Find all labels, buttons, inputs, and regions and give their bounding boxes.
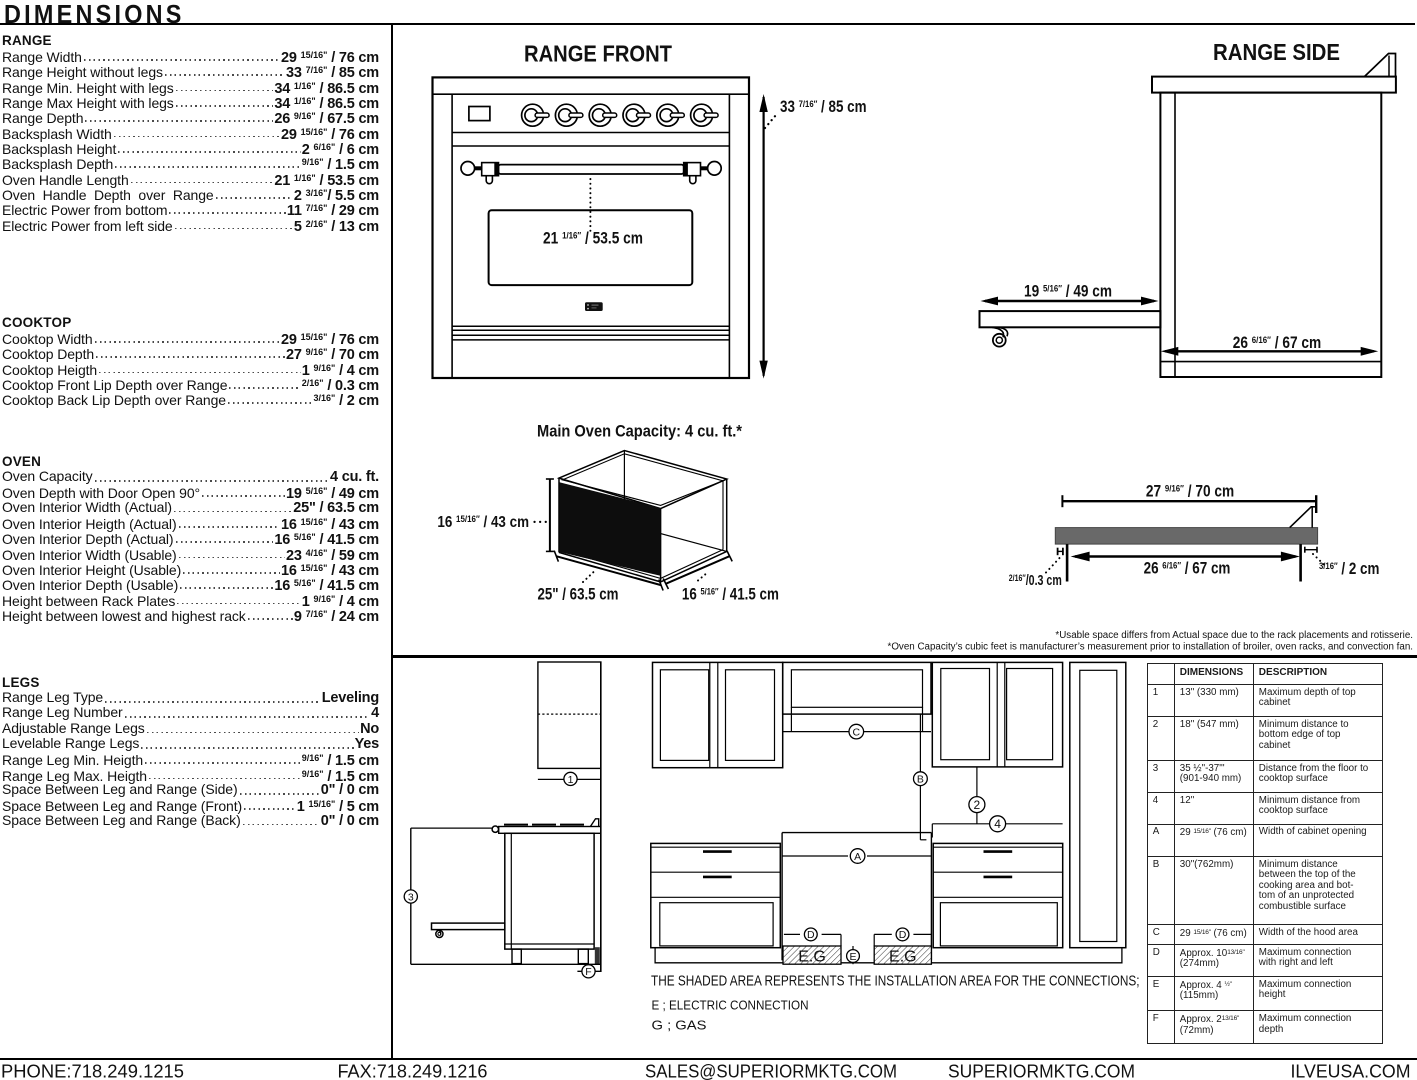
svg-text:Main Oven Capacity: 4 cu. ft.*: Main Oven Capacity: 4 cu. ft.* (537, 423, 743, 441)
svg-text:B: B (917, 774, 924, 786)
svg-text:SALES@SUPERIORMKTG.COM: SALES@SUPERIORMKTG.COM (645, 1062, 897, 1080)
svg-text:FAX:718.249.1216: FAX:718.249.1216 (338, 1062, 488, 1080)
svg-text:E ; ELECTRIC CONNECTION: E ; ELECTRIC CONNECTION (652, 998, 809, 1013)
svg-text:A: A (854, 851, 861, 863)
svg-text:26 6/16″ / 67 cm: 26 6/16″ / 67 cm (1233, 334, 1322, 352)
svg-text:SUPERIORMKTG.COM: SUPERIORMKTG.COM (948, 1062, 1135, 1080)
svg-text:RANGE FRONT: RANGE FRONT (524, 41, 673, 67)
svg-text:26 6/16″ / 67 cm: 26 6/16″ / 67 cm (1144, 560, 1231, 578)
svg-text:2/16″/0.3 cm: 2/16″/0.3 cm (1009, 573, 1062, 589)
svg-text:2: 2 (974, 798, 981, 812)
svg-text:RANGE SIDE: RANGE SIDE (1213, 39, 1340, 65)
svg-text:E.G: E.G (889, 949, 917, 966)
svg-text:E: E (849, 951, 856, 963)
svg-text:D: D (899, 929, 907, 941)
svg-text:3/16″ / 2 cm: 3/16″ / 2 cm (1319, 560, 1379, 578)
svg-text:C: C (853, 726, 861, 738)
svg-text:25" / 63.5 cm: 25" / 63.5 cm (538, 585, 619, 604)
svg-text:PHONE:718.249.1215: PHONE:718.249.1215 (1, 1062, 184, 1080)
svg-text:4: 4 (994, 817, 1001, 831)
svg-text:33 7/16″ / 85 cm: 33 7/16″ / 85 cm (780, 98, 867, 116)
svg-text:*Oven Capacity’s cubic feet is: *Oven Capacity’s cubic feet is manufactu… (888, 642, 1414, 653)
svg-text:*Usable space differs from Act: *Usable space differs from Actual space … (1055, 630, 1413, 641)
svg-text:21 1/16″ / 53.5 cm: 21 1/16″ / 53.5 cm (543, 230, 643, 248)
svg-text:19 5/16″ / 49 cm: 19 5/16″ / 49 cm (1024, 283, 1112, 301)
svg-text:G ; GAS: G ; GAS (652, 1018, 707, 1033)
svg-text:D: D (807, 929, 815, 941)
svg-text:1: 1 (568, 774, 574, 786)
svg-text:ILVEUSA.COM: ILVEUSA.COM (1291, 1062, 1411, 1080)
svg-text:16 5/16″ / 41.5 cm: 16 5/16″ / 41.5 cm (682, 585, 779, 604)
svg-text:THE SHADED AREA REPRESENTS THE: THE SHADED AREA REPRESENTS THE INSTALLAT… (651, 973, 1140, 990)
svg-text:27 9/16″ / 70 cm: 27 9/16″ / 70 cm (1146, 483, 1234, 501)
svg-text:3: 3 (408, 891, 414, 903)
svg-text:F: F (585, 966, 591, 978)
svg-text:16 15/16″ / 43 cm: 16 15/16″ / 43 cm (437, 514, 529, 531)
svg-text:E.G: E.G (798, 949, 826, 966)
